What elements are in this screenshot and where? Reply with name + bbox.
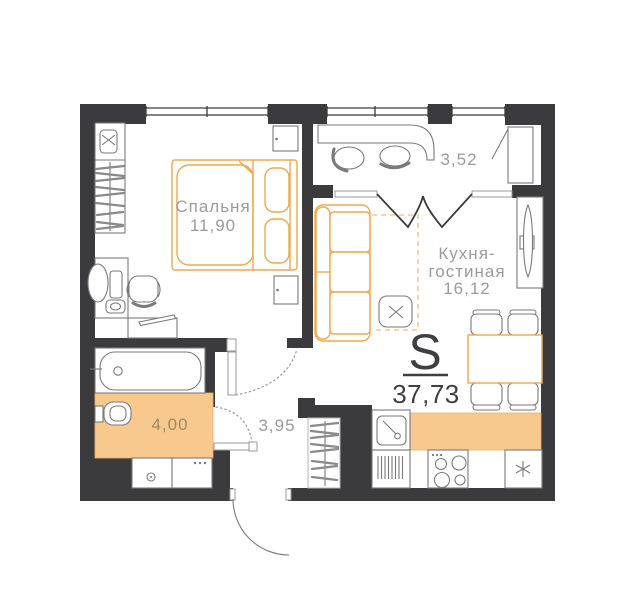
bathroom-area: 4,00 bbox=[151, 415, 188, 434]
dining-chair-icon bbox=[508, 310, 538, 335]
balcony-area: 3,52 bbox=[440, 150, 477, 169]
bedroom-area: 11,90 bbox=[190, 216, 236, 235]
sofa-icon bbox=[315, 205, 370, 341]
fridge-icon bbox=[505, 450, 542, 488]
balcony-cabinet-icon bbox=[492, 127, 533, 183]
dresser-icon bbox=[128, 315, 177, 338]
bathroom-door bbox=[214, 407, 257, 451]
bedroom-name: Спальня bbox=[175, 197, 250, 216]
dining-chair-icon bbox=[508, 383, 538, 410]
office-chair-icon bbox=[127, 276, 160, 307]
total-area-block: S 37,73 bbox=[392, 324, 460, 409]
vanity-sink-icon bbox=[132, 458, 172, 488]
washing-machine-icon bbox=[172, 458, 212, 488]
hallway-area: 3,95 bbox=[258, 416, 295, 435]
coffee-table-icon bbox=[379, 296, 412, 327]
floor-plan: Спальня 11,90 3,52 bbox=[0, 0, 631, 595]
hall-closet-icon bbox=[308, 418, 340, 488]
tv-stand-icon bbox=[517, 197, 543, 288]
toilet-icon bbox=[95, 402, 131, 425]
dish-rack-icon bbox=[372, 450, 410, 488]
stove-icon bbox=[428, 450, 468, 488]
dining-table-icon bbox=[468, 335, 542, 383]
kitchen-sink-icon bbox=[372, 410, 410, 450]
dining-chair-icon bbox=[471, 310, 502, 335]
bedroom-door bbox=[227, 339, 297, 395]
entrance-door bbox=[230, 489, 291, 555]
total-area: 37,73 bbox=[392, 379, 460, 409]
balcony-stool-icon bbox=[333, 147, 364, 171]
nightstand-icon bbox=[274, 276, 298, 304]
total-symbol: S bbox=[408, 324, 441, 380]
balcony-stool-icon bbox=[380, 146, 410, 168]
wardrobe-icon bbox=[95, 123, 125, 233]
kitchen-counter bbox=[410, 413, 541, 450]
bathtub-icon bbox=[90, 348, 205, 393]
kitchen-area: 16,12 bbox=[443, 279, 491, 298]
nightstand-icon bbox=[273, 126, 298, 151]
dining-chair-icon bbox=[471, 383, 502, 410]
kitchen-name-line1: Кухня- bbox=[438, 244, 495, 263]
